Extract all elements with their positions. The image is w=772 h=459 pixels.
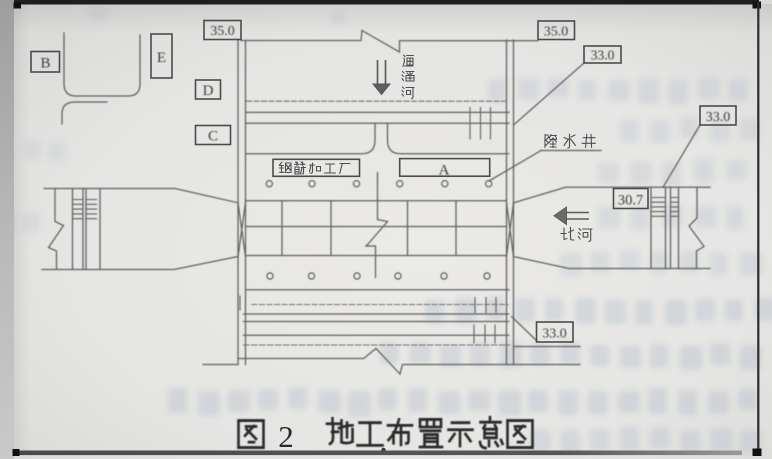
svg-text:B: B <box>40 56 50 72</box>
svg-text:E: E <box>157 50 166 66</box>
svg-text:30.7: 30.7 <box>618 193 643 209</box>
svg-text:33.0: 33.0 <box>706 110 731 125</box>
svg-text:35.0: 35.0 <box>544 25 569 40</box>
svg-text:33.0: 33.0 <box>542 327 567 342</box>
svg-text:33.0: 33.0 <box>591 48 615 63</box>
svg-text:D: D <box>203 83 214 99</box>
svg-text:A: A <box>439 163 450 179</box>
svg-text:35.0: 35.0 <box>210 24 235 39</box>
svg-text:2: 2 <box>278 419 294 454</box>
svg-text:C: C <box>208 129 218 145</box>
